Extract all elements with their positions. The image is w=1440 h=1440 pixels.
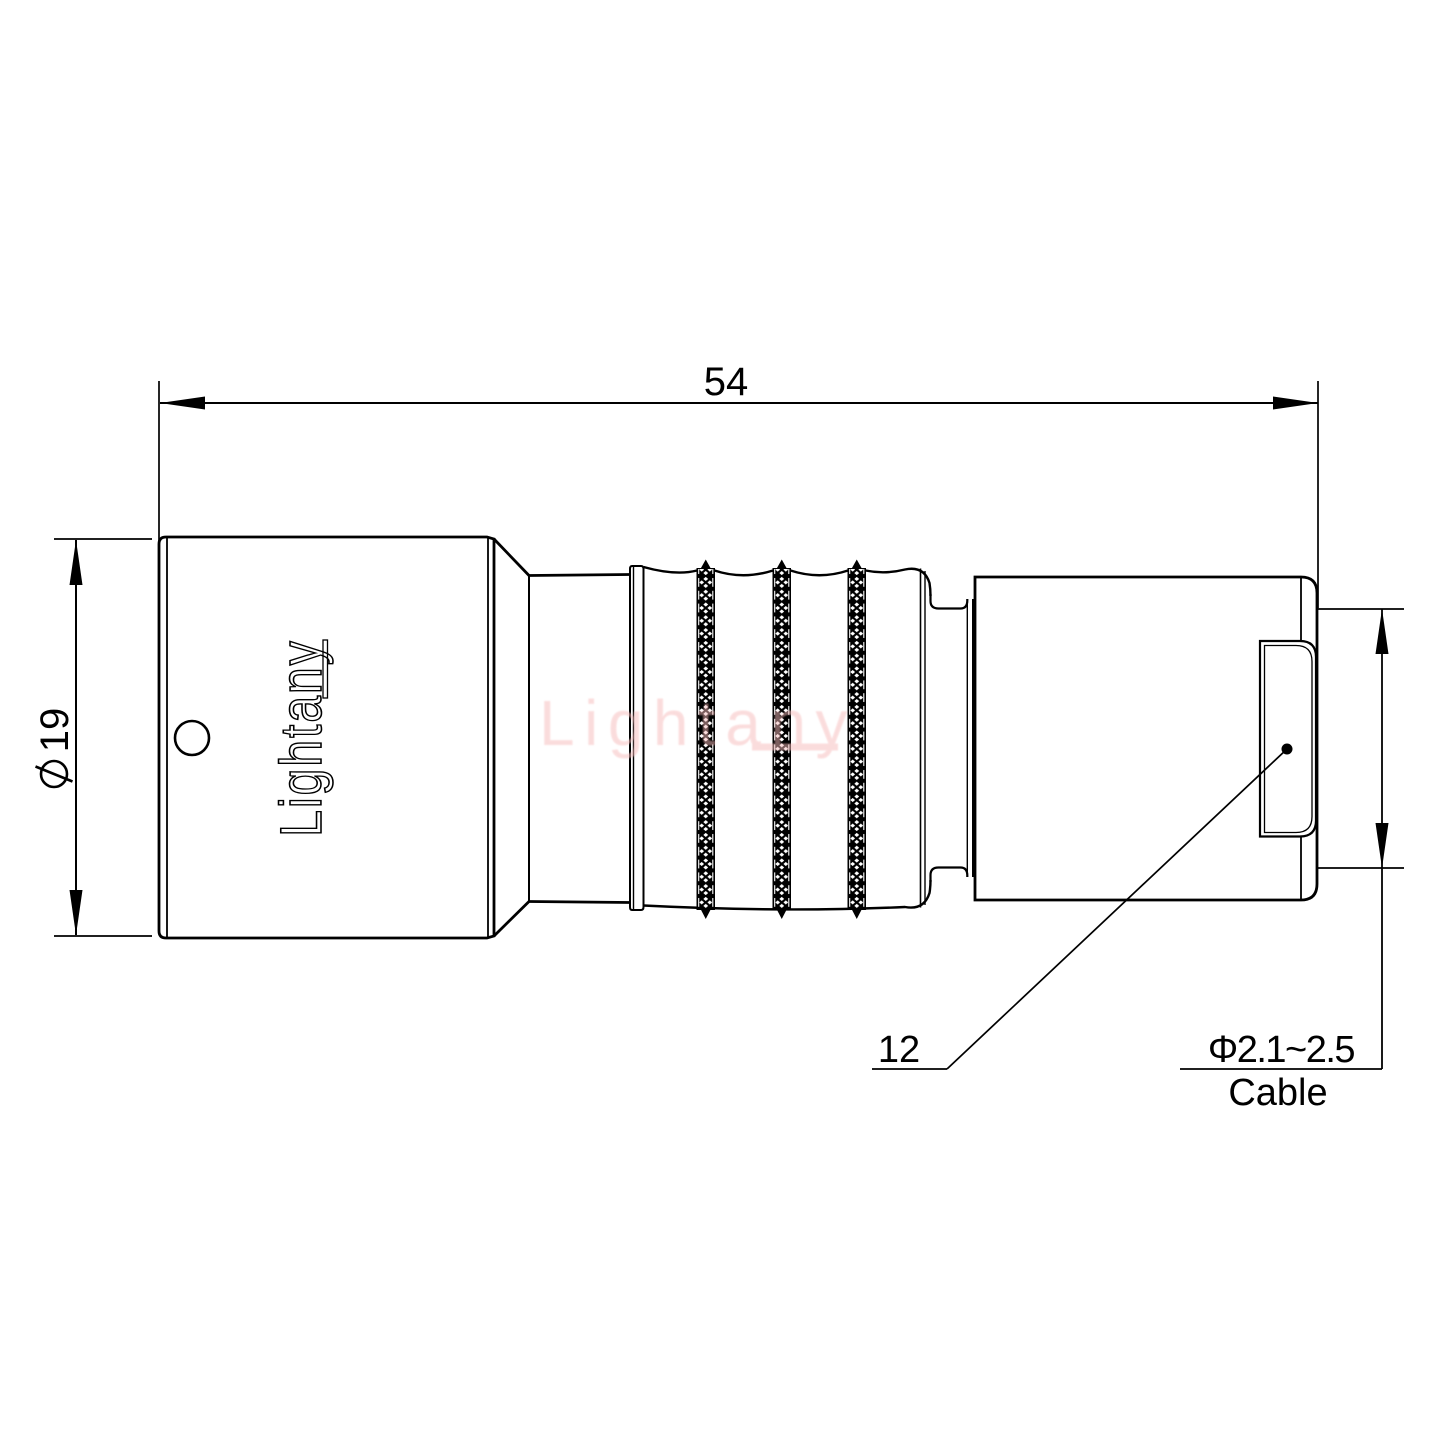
svg-text:Cable: Cable: [1228, 1072, 1327, 1114]
svg-text:19: 19: [33, 708, 77, 753]
svg-text:Lightany: Lightany: [270, 639, 335, 836]
svg-text:Φ2.1~2.5: Φ2.1~2.5: [1208, 1029, 1355, 1071]
svg-text:12: 12: [878, 1029, 920, 1071]
svg-text:54: 54: [704, 360, 749, 404]
